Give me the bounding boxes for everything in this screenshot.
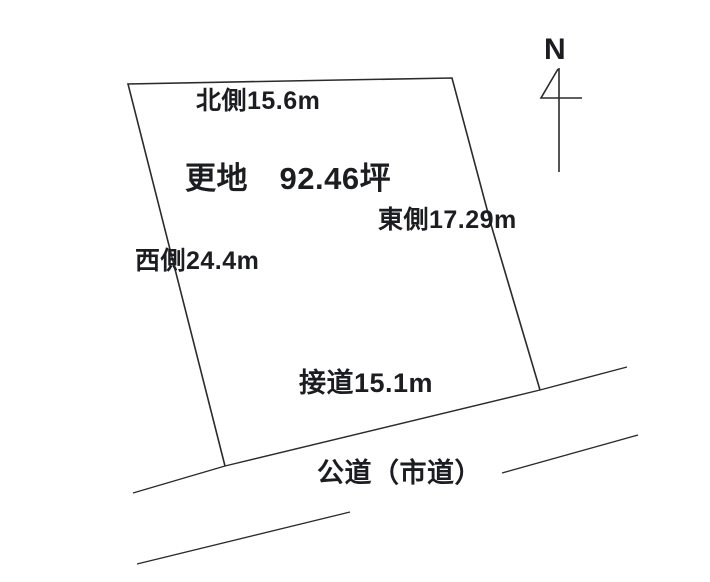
north-side-dimension: 北側15.6m [196,87,320,116]
road-edge-far-left [137,512,350,564]
frontage-dimension: 接道15.1m [299,368,433,399]
east-side-dimension: 東側17.29m [378,206,517,235]
land-plot-diagram: 北側15.6m 更地 92.46坪 東側17.29m 西側24.4m 接道15.… [0,0,710,582]
road-label: 公道（市道） [317,458,482,489]
north-indicator: N [544,33,566,68]
north-arrow-icon [541,68,582,172]
land-area-label: 更地 92.46坪 [185,161,391,197]
west-side-dimension: 西側24.4m [135,247,259,276]
road-edge-far-right [502,435,638,473]
plot-drawing [0,0,710,582]
